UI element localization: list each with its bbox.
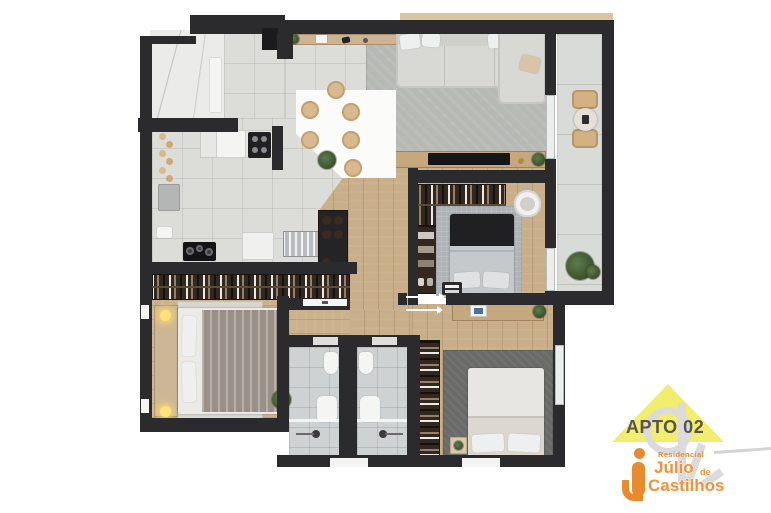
apartment-number-label: APTO 02 (626, 417, 736, 438)
bedroom2-pillow (508, 433, 541, 453)
balcony-glass-door (546, 95, 555, 159)
stove-burner-icon (252, 147, 258, 153)
book-icon (445, 285, 459, 288)
wall-tv (408, 170, 548, 183)
hallway-floor (348, 168, 412, 310)
stool-icon (342, 131, 360, 149)
shower-arm (296, 433, 314, 435)
shoe-icon (427, 278, 433, 286)
shower-arm (385, 433, 403, 435)
bathroom-b-door-gap (372, 337, 397, 345)
table-decor-icon (582, 115, 589, 124)
wall-left (140, 36, 152, 432)
wall-entry-top (150, 36, 196, 44)
wall-kitchen-bottom (140, 262, 357, 274)
laptop (470, 305, 487, 317)
folded-clothes-icon (418, 246, 434, 253)
entry-door-leaf (210, 58, 221, 112)
spice-jar-icon (166, 175, 173, 182)
bedroom3-open-wardrobe (152, 274, 350, 300)
bench-plant-icon (454, 441, 463, 450)
bedside-lamp-icon (160, 310, 171, 321)
bedroom2-bed (468, 368, 544, 457)
fridge (216, 130, 246, 158)
bedroom2-pillow (472, 433, 505, 453)
wall-entry-divider-a (277, 33, 293, 59)
washing-machine (283, 231, 319, 257)
sofa-chaise (498, 30, 546, 104)
castilhos-label: Castilhos (648, 476, 725, 496)
stove-burner-icon (261, 136, 267, 142)
door-arrow-icon (406, 296, 440, 298)
bedroom3-headboard (154, 305, 178, 417)
bedroom3-window (141, 399, 149, 413)
folded-clothes-icon (418, 260, 434, 267)
door-arrow-icon (406, 309, 438, 311)
wall-suite-bottom-a (398, 293, 407, 305)
bathroom-window-sill (330, 458, 368, 467)
bedroom3-pillow (181, 362, 196, 402)
julio-label: Júlio (654, 458, 694, 478)
shoe-icon (418, 278, 424, 286)
bedroom2-open-wardrobe (419, 340, 440, 456)
wall-entry-kitchen (138, 118, 238, 132)
stool-icon (301, 101, 319, 119)
wall-bathroom-right (407, 335, 420, 467)
dining-plant-icon (318, 151, 336, 169)
wine-rack-icon (334, 230, 343, 239)
bedroom3-window (141, 305, 149, 319)
wall-suite-left (408, 168, 418, 305)
wall-bathroom-divider (339, 335, 357, 467)
stove (248, 132, 271, 158)
shower-glass-line (289, 419, 339, 422)
stool-icon (327, 81, 345, 99)
logo-j-hook-icon (622, 480, 643, 501)
bedroom2-bench (450, 437, 467, 454)
wall-suite-bottom-b (446, 293, 558, 305)
sofa-pillow-tan (518, 54, 541, 74)
bedside-lamp-icon (160, 406, 171, 417)
suite-bed-throw (450, 214, 514, 246)
spice-jar-icon (166, 158, 173, 165)
stool-icon (344, 159, 362, 177)
wall-top-main (285, 20, 614, 34)
stool-icon (301, 131, 319, 149)
balcony-chair (572, 129, 598, 148)
watermark-line-icon (714, 447, 771, 454)
suite-bed-fold (450, 250, 514, 252)
console-plant-icon (532, 153, 545, 166)
bedroom2-window (555, 345, 564, 405)
bedroom2-desk (452, 304, 544, 321)
shelf-decor-box (316, 35, 327, 43)
wine-rack-icon (334, 216, 343, 225)
console-decor (518, 158, 524, 164)
floor-plan-page: { "logo": { "unit": "APTO 02", "residenc… (0, 0, 771, 513)
logo-j-dot-icon (634, 448, 645, 459)
shower-glass-line (357, 419, 407, 422)
balcony-chair (572, 90, 598, 109)
sofa-seat-divider (494, 46, 495, 86)
bedroom3-pillow (181, 316, 196, 356)
shelf-decor-knob (363, 38, 368, 43)
pot-icon (196, 245, 203, 252)
wine-rack-icon (322, 230, 331, 239)
cooktop (183, 242, 216, 261)
wall-living-balcony-a (545, 33, 556, 95)
wall-balcony-right (602, 20, 614, 305)
spice-jar-icon (159, 133, 166, 140)
wall-entry-divider-b (272, 126, 283, 170)
armchair-seat (520, 197, 535, 211)
sofa-pillow (399, 33, 421, 51)
bedroom2-window-sill (462, 458, 500, 467)
wall-niche (262, 28, 278, 50)
bedroom2-bed-fold (468, 416, 544, 418)
laptop-screen (474, 308, 483, 314)
stove-burner-icon (252, 136, 258, 142)
closet-sliding-door (303, 299, 347, 306)
stove-burner-icon (261, 147, 267, 153)
suite-pillow (482, 271, 509, 289)
balcony-plant-leaf-icon (586, 265, 600, 279)
spice-jar-icon (159, 150, 166, 157)
spice-jar-icon (159, 167, 166, 174)
suite-armchair (514, 190, 541, 217)
balcony-table (574, 108, 597, 131)
spice-jar-icon (166, 141, 173, 148)
kitchen-sink (157, 227, 172, 238)
stool-icon (342, 103, 360, 121)
sofa-seat-divider (444, 46, 445, 86)
bathroom-a-door-gap (313, 337, 338, 345)
suite-balcony-window (546, 248, 555, 291)
folded-clothes-icon (418, 232, 434, 239)
wall-bedroom3-bottom (140, 418, 289, 432)
wardrobe-rail-line (152, 286, 350, 288)
kitchen-appliance (158, 184, 180, 211)
tv (428, 153, 510, 165)
sofa-pillow (421, 32, 440, 48)
toilet (324, 352, 338, 374)
door-handle-icon (322, 301, 328, 304)
desk-plant-icon (533, 305, 546, 318)
wine-rack-icon (322, 216, 331, 225)
logo: APTO 02 Residencial Júlio de Castilhos (595, 375, 771, 510)
pot-icon (205, 248, 213, 256)
toilet (359, 352, 373, 374)
kitchen-cabinet (242, 232, 274, 260)
pot-icon (186, 247, 194, 255)
wall-bedroom3-right (277, 296, 289, 432)
